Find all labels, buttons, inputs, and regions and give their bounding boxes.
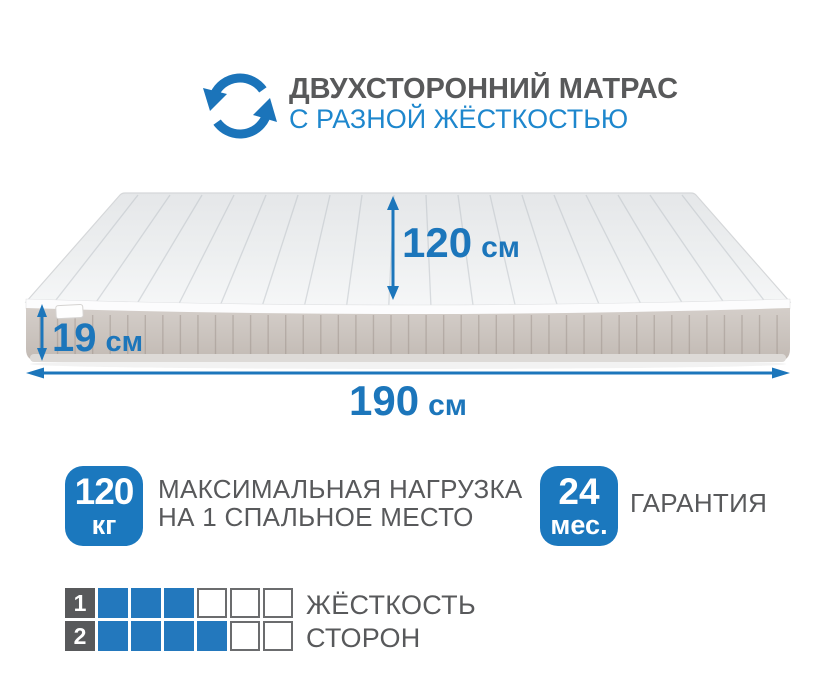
firmness-label-line1: ЖЁСТКОСТЬ [306,589,476,622]
height-dimension-label: 19см [52,318,143,358]
page-title: ДВУХСТОРОННИЙ МАТРАС [289,73,678,106]
warranty-value: 24 [558,473,599,510]
max-load-label-line2: НА 1 СПАЛЬНОЕ МЕСТО [158,503,523,531]
warranty-badge: 24 мес. [540,466,618,546]
max-load-badge: 120 кг [65,466,143,546]
firmness-label: ЖЁСТКОСТЬ СТОРОН [306,589,476,655]
firmness-cell [164,621,194,651]
warranty-label: ГАРАНТИЯ [630,489,767,517]
rotate-arc-top [215,78,263,94]
max-load-label: МАКСИМАЛЬНАЯ НАГРУЗКА НА 1 СПАЛЬНОЕ МЕСТ… [158,475,523,531]
length-unit: см [428,389,467,422]
rotate-arrowhead-right [253,98,277,122]
firmness-cell [131,621,161,651]
warranty-unit: мес. [550,512,607,539]
firmness-cell [263,588,293,618]
firmness-label-line2: СТОРОН [306,622,476,655]
firmness-cell [98,588,128,618]
width-dimension-label: 120см [402,222,520,264]
rotate-icon [199,64,281,146]
firmness-row-side-2: 2 [65,621,293,651]
firmness-cell [164,588,194,618]
mattress-bottom-piping [30,354,786,362]
firmness-cell [230,588,260,618]
firmness-cell [131,588,161,618]
firmness-grid: 12 [65,588,293,651]
length-dimension-label: 190см [0,380,816,422]
firmness-cell [263,621,293,651]
width-value: 120 [402,219,472,266]
firmness-side-number: 2 [65,621,95,651]
firmness-cell [197,621,227,651]
rotate-arrowhead-left [203,88,227,111]
page-subtitle: С РАЗНОЙ ЖЁСТКОСТЬЮ [289,104,628,135]
max-load-label-line1: МАКСИМАЛЬНАЯ НАГРУЗКА [158,475,523,503]
rotate-arc-bottom [217,118,265,134]
firmness-cell [98,621,128,651]
height-value: 19 [52,316,97,360]
mattress-infographic: ДВУХСТОРОННИЙ МАТРАС С РАЗНОЙ ЖЁСТКОСТЬЮ [0,0,816,700]
width-unit: см [481,231,520,264]
max-load-unit: кг [92,512,117,539]
max-load-value: 120 [75,473,134,510]
firmness-row-side-1: 1 [65,588,293,618]
firmness-cell [197,588,227,618]
height-unit: см [106,326,144,358]
firmness-side-number: 1 [65,588,95,618]
firmness-cell [230,621,260,651]
length-value: 190 [349,377,419,424]
